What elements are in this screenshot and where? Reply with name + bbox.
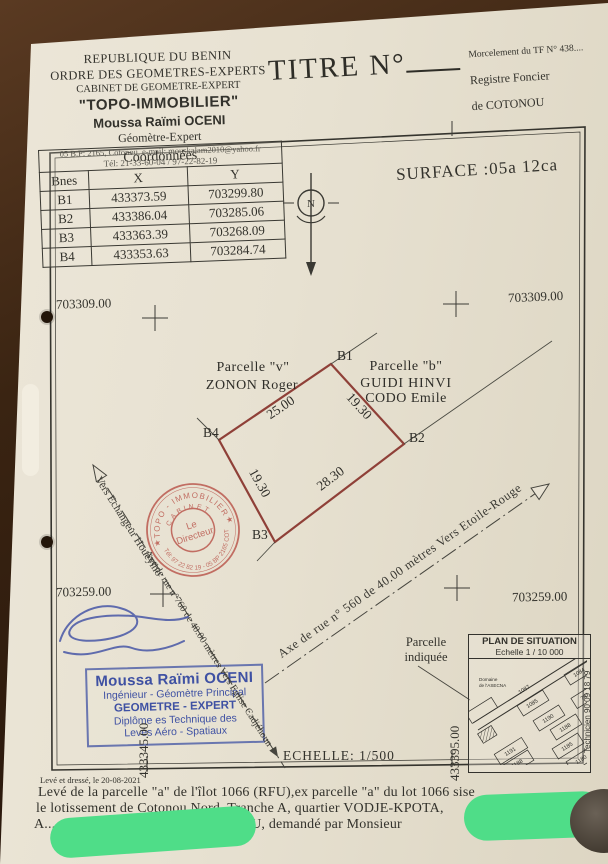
situation-plan-scale: Echelle 1 / 10 000 xyxy=(469,647,590,657)
grid-label-703259-left: 703259.00 xyxy=(56,584,112,601)
block-label: 1190 xyxy=(542,713,555,724)
scanned-survey-document: REPUBLIQUE DU BENIN ORDRE DES GEOMETRES-… xyxy=(0,0,608,864)
block-label: 1085 xyxy=(526,698,540,710)
block-label: 1087 xyxy=(518,684,532,696)
block-label: 1185 xyxy=(561,741,574,752)
situation-plan-inset: PLAN DE SITUATION Echelle 1 / 10 000 xyxy=(468,634,591,773)
pointer-line2: indiquée xyxy=(383,650,469,665)
blue-rect-stamp: Moussa Raïmi OCENI Ingénieur - Géomètre … xyxy=(85,664,265,747)
registre-line: Registre Foncier xyxy=(470,65,608,88)
registry-block: Morcelement du TF N° 438.... Registre Fo… xyxy=(468,42,608,114)
cell: B1 xyxy=(40,190,90,211)
block-label: 1180 xyxy=(575,754,587,765)
grid-label-433345-vertical: 433345.00 xyxy=(136,723,152,778)
block-label: 1188 xyxy=(559,722,572,733)
hole-punch-bottom xyxy=(41,536,53,548)
pointer-line1: Parcelle xyxy=(383,635,469,650)
domain-note-line2: de l'ASECNA xyxy=(479,683,507,688)
hole-punch-top xyxy=(41,311,53,323)
grid-label-703259-right: 703259.00 xyxy=(512,589,568,606)
situation-map: 1084 1087 1085 783 1190 1188 1191 1185 1… xyxy=(469,659,587,765)
col-bnes: Bnes xyxy=(39,171,89,192)
grid-label-433395-vertical: 433395.00 xyxy=(447,726,463,781)
technician-note: Technicien 90 09 18 79 xyxy=(583,671,592,753)
grid-label-703309-right: 703309.00 xyxy=(508,288,564,306)
grid-label-703309-left: 703309.00 xyxy=(56,295,112,312)
scale-label: ECHELLE: 1/500 xyxy=(283,748,395,764)
situation-plan-header: PLAN DE SITUATION Echelle 1 / 10 000 xyxy=(469,635,590,659)
coordinates-table: Coordonnées Bnes X Y B1 433373.59 703299… xyxy=(38,141,286,268)
indicated-parcel-label: Parcelle indiquée xyxy=(383,635,469,665)
cell: 433353.63 xyxy=(91,243,191,266)
survey-date-line: Levé et dressé, le 20-08-2021 xyxy=(40,775,141,785)
domain-note-line1: Domaine xyxy=(479,677,498,682)
cell: B4 xyxy=(42,247,92,268)
block-label: 1191 xyxy=(504,746,517,757)
title-text: TITRE N° xyxy=(267,48,406,87)
situation-plan-title: PLAN DE SITUATION xyxy=(469,636,590,647)
cell: B3 xyxy=(42,228,92,249)
title-blank-line xyxy=(405,48,460,73)
cell: 703284.74 xyxy=(190,239,286,262)
torn-paper-chip xyxy=(22,384,39,476)
cell: B2 xyxy=(41,209,91,230)
